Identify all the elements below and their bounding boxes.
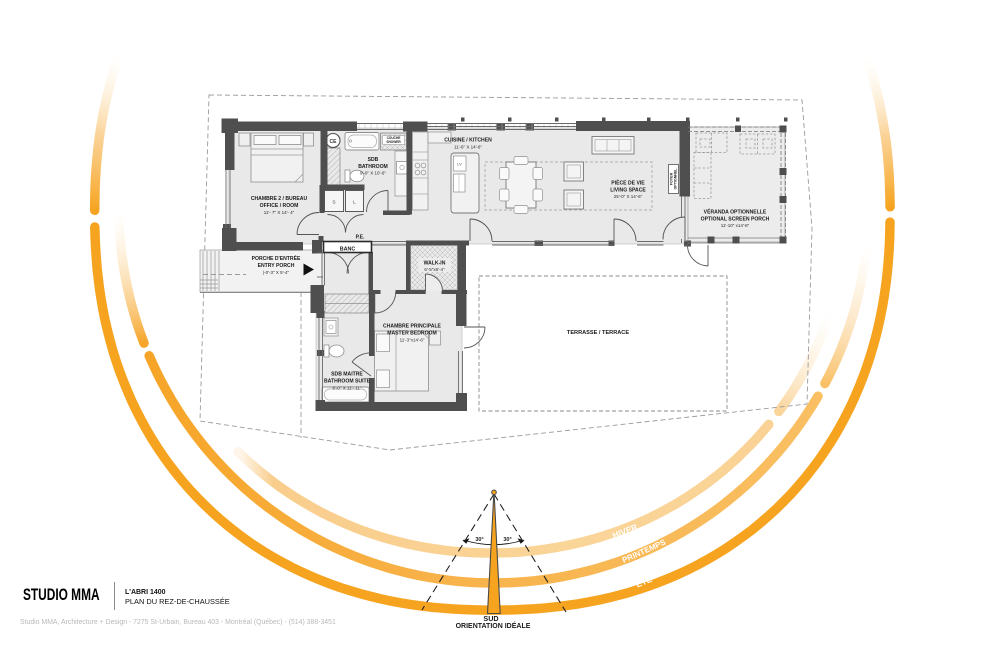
svg-text:VÉRANDA OPTIONNELLE: VÉRANDA OPTIONNELLE [704,208,767,216]
svg-text:WALK-IN: WALK-IN [424,261,446,267]
svg-text:CHAMBRE PRINCIPALE: CHAMBRE PRINCIPALE [383,324,442,330]
svg-text:BATHROOM SUITE: BATHROOM SUITE [324,379,371,385]
svg-text:OFFICE / ROOM: OFFICE / ROOM [260,203,299,209]
svg-text:P.E.: P.E. [356,235,365,241]
svg-text:CUISINE / KITCHEN: CUISINE / KITCHEN [444,138,492,144]
svg-text:25'-0" X 14'-6": 25'-0" X 14'-6" [614,194,643,199]
svg-text:11'-3"x14'-6": 11'-3"x14'-6" [400,338,425,343]
svg-text:PIÈCE DE VIE: PIÈCE DE VIE [611,179,645,187]
svg-text:PORCHE D'ENTRÉE: PORCHE D'ENTRÉE [252,254,301,262]
svg-text:11'-6" X 14'-6": 11'-6" X 14'-6" [454,145,482,150]
svg-text:SDB MAITRE: SDB MAITRE [331,372,363,378]
svg-text:6'-5"x6'-4": 6'-5"x6'-4" [424,267,445,272]
svg-text:CHAMBRE 2 / BUREAU: CHAMBRE 2 / BUREAU [251,196,308,202]
svg-text:MASTER BEDROOM: MASTER BEDROOM [387,331,437,337]
svg-text:|-0'-3" X 5'-4": |-0'-3" X 5'-4" [263,270,289,275]
svg-text:9'-0" X 10'-6": 9'-0" X 10'-6" [360,171,386,176]
svg-text:11'- 7" X 14'- 4": 11'- 7" X 14'- 4" [264,210,295,215]
svg-text:SDB: SDB [368,157,379,163]
svg-text:PRINTEMPS: PRINTEMPS [621,537,668,564]
svg-text:LIVING SPACE: LIVING SPACE [610,188,646,194]
svg-text:BATHROOM: BATHROOM [358,164,388,170]
svg-text:ENTRY PORCH: ENTRY PORCH [258,263,295,269]
svg-text:BANC: BANC [340,247,356,253]
svg-text:OPTIONAL SCREEN PORCH: OPTIONAL SCREEN PORCH [701,217,770,223]
svg-text:ORIENTATION IDÉALE: ORIENTATION IDÉALE [456,621,531,630]
svg-text:S: S [332,200,335,206]
svg-text:L: L [353,200,356,206]
svg-text:SHOWER: SHOWER [386,140,401,144]
svg-text:6'-0" X 11'- 11": 6'-0" X 11'- 11" [332,386,361,391]
svg-text:SUD: SUD [483,614,498,623]
svg-text:OPTIONNEL: OPTIONNEL [674,168,678,190]
svg-text:LV: LV [457,162,462,167]
svg-text:TERRASSE / TERRACE: TERRASSE / TERRACE [567,330,629,336]
svg-text:30°: 30° [503,537,511,543]
svg-text:30°: 30° [475,537,483,543]
svg-text:CE: CE [330,139,338,145]
svg-text:11'-10" x14'-8": 11'-10" x14'-8" [721,223,750,228]
